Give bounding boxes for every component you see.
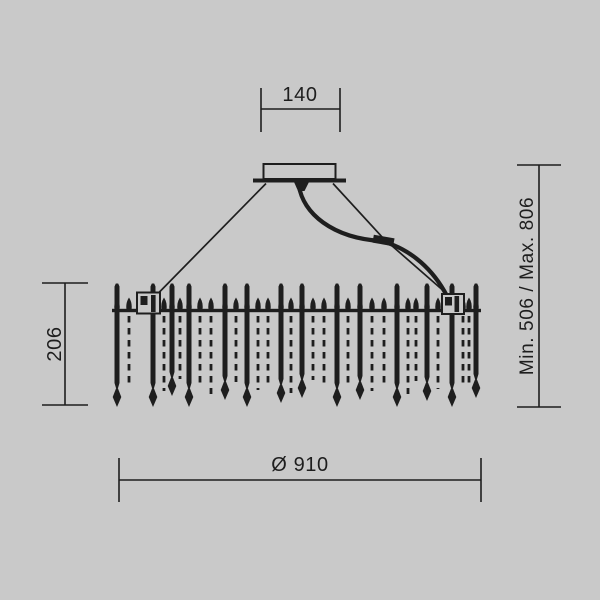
crystal-rod-tip xyxy=(393,386,402,407)
bar-bead xyxy=(435,298,440,311)
bracket-rod-segment xyxy=(151,295,156,312)
crystal-rod-tip xyxy=(423,380,432,401)
crystal-rod xyxy=(279,284,284,385)
chandelier-dimension-diagram: 140 206 Min. 506 / Max. 806 xyxy=(0,0,600,600)
crystal-rod xyxy=(245,284,250,389)
bar-bead xyxy=(369,298,374,311)
cable-gripper xyxy=(372,235,394,247)
dim-diameter: Ø 910 xyxy=(119,454,481,502)
left-suspension-wire xyxy=(158,184,266,294)
bracket-clip xyxy=(445,297,452,306)
bracket-rod-segment xyxy=(455,296,460,312)
crystal-rod-tip xyxy=(185,386,194,407)
dim-suspension-height-label: Min. 506 / Max. 806 xyxy=(517,197,538,375)
crystal-rod-tip xyxy=(298,377,307,398)
crystal-rod-tip xyxy=(472,377,481,398)
crystal-rod xyxy=(115,284,120,389)
dim-body-height: 206 xyxy=(42,283,88,405)
bar-bead xyxy=(466,298,471,311)
crystal-rod xyxy=(395,284,400,389)
crystal-rod xyxy=(474,284,479,380)
crystal-rod-tip xyxy=(149,386,158,407)
bar-bead xyxy=(208,298,213,311)
suspension-wires xyxy=(158,184,447,297)
crystal-rod xyxy=(187,284,192,389)
bar-bead xyxy=(288,298,293,311)
crystal-rod-tip xyxy=(277,382,286,403)
technical-drawing-page: 140 206 Min. 506 / Max. 806 xyxy=(0,0,600,600)
bar-bead xyxy=(255,298,260,311)
crystal-rod xyxy=(170,284,175,378)
bar-bead xyxy=(126,298,131,311)
bar-bead xyxy=(197,298,202,311)
crystal-rod xyxy=(335,284,340,389)
bracket-clip xyxy=(141,296,148,305)
canopy-base-plate xyxy=(253,179,346,183)
canopy-body xyxy=(264,164,336,179)
dim-diameter-label: Ø 910 xyxy=(271,454,328,476)
bracket-frame xyxy=(137,293,160,314)
bar-bead xyxy=(381,298,386,311)
crystal-rod-tip xyxy=(356,379,365,400)
crystal-rod-tip xyxy=(243,386,252,407)
crystal-rod-tip xyxy=(221,379,230,400)
crystal-rod xyxy=(223,284,228,382)
left-attachment-bracket xyxy=(137,293,160,314)
crystal-rod xyxy=(358,284,363,382)
right-attachment-bracket xyxy=(442,294,464,314)
bar-bead xyxy=(233,298,238,311)
dim-canopy-width-label: 140 xyxy=(282,84,317,106)
crystal-rod-tip xyxy=(333,386,342,407)
dim-suspension-height: Min. 506 / Max. 806 xyxy=(517,165,561,407)
dim-body-height-label: 206 xyxy=(44,326,66,361)
bar-bead xyxy=(177,298,182,311)
bar-bead xyxy=(413,298,418,311)
bar-bead xyxy=(405,298,410,311)
bar-bead xyxy=(161,298,166,311)
crystal-rod xyxy=(425,284,430,383)
bar-bead xyxy=(321,298,326,311)
frame-bar xyxy=(112,309,481,312)
dim-canopy-width: 140 xyxy=(261,84,340,132)
crystal-rod-tip xyxy=(113,386,122,407)
chandelier-body xyxy=(112,284,481,408)
bar-bead xyxy=(265,298,270,311)
crystal-rod-tip xyxy=(168,375,177,396)
bar-bead xyxy=(310,298,315,311)
crystal-rod xyxy=(300,284,305,380)
bar-bead xyxy=(345,298,350,311)
crystal-rod-tip xyxy=(448,386,457,407)
